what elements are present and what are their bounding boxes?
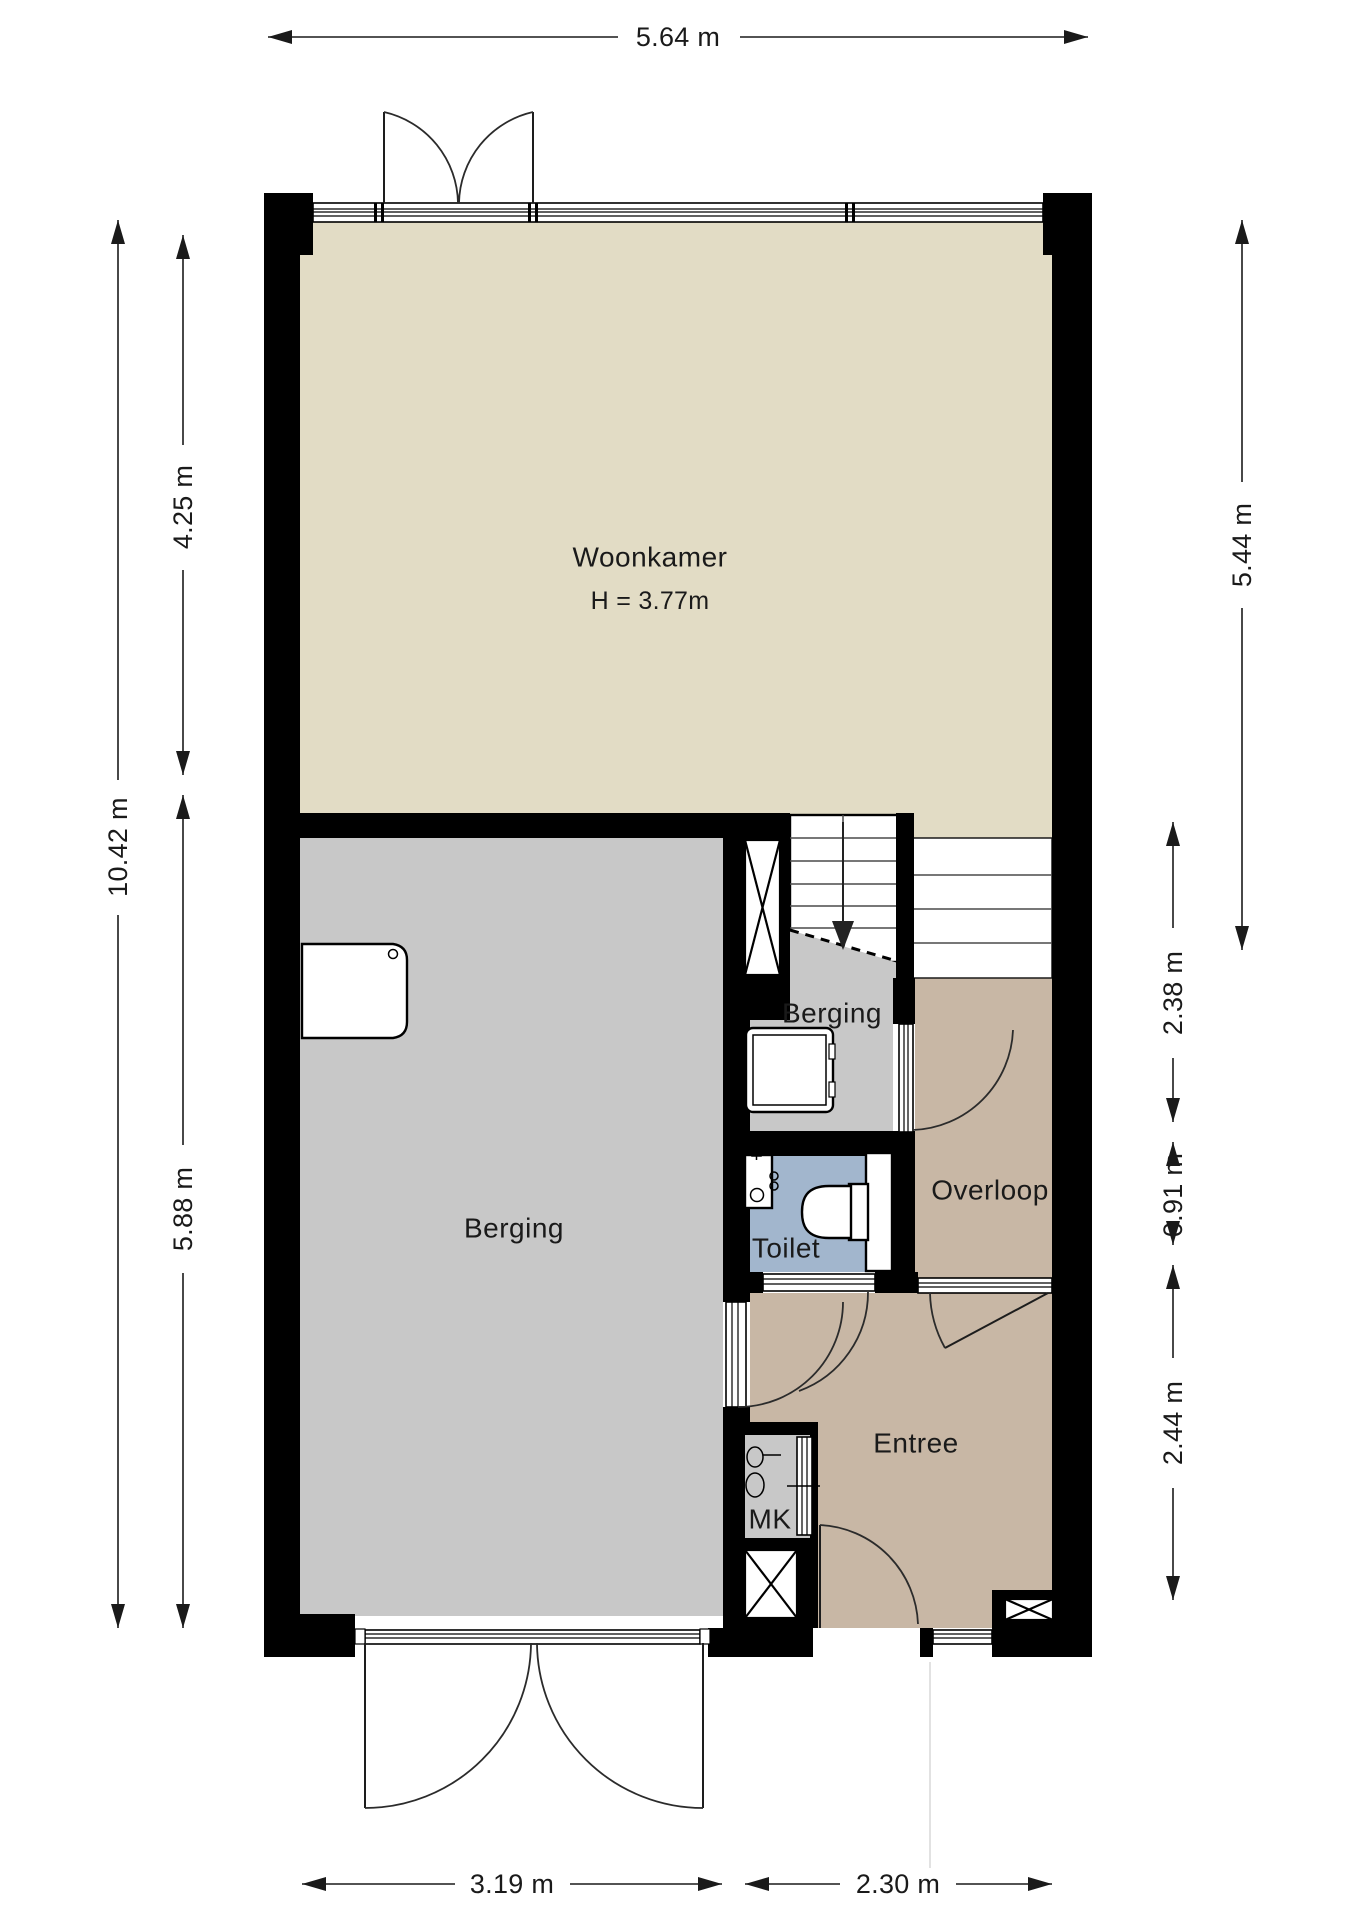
wall-corner-bottom-left: [264, 1614, 355, 1657]
wall-left: [264, 193, 300, 1657]
dimension-label-right-lower: 2.44 m: [1158, 1381, 1188, 1465]
window-divider: [535, 203, 538, 222]
wc-bowl: [802, 1186, 851, 1238]
door-jamb: [355, 1629, 365, 1644]
room-label-overloop: Overloop: [931, 1175, 1049, 1206]
washer-hinge-icon: [829, 1044, 835, 1059]
wall-woonkamer-berging: [264, 813, 790, 838]
room-note-woonkamer-height: H = 3.77m: [591, 587, 710, 615]
dimension-label-left-lower: 5.88 m: [168, 1167, 198, 1251]
dimension-label-bottom-left: 3.19 m: [470, 1869, 554, 1899]
wall-stair-divider: [896, 813, 914, 978]
wall-corner-top-left: [264, 193, 313, 255]
room-label-berging-small: Berging: [782, 998, 882, 1029]
stairs-lower-flight: [913, 838, 1052, 978]
wall-right: [1052, 193, 1092, 1657]
washer-hinge-icon: [829, 1082, 835, 1097]
staircase: [790, 815, 1052, 978]
door-bottom-band: [365, 1630, 700, 1644]
room-label-entree: Entree: [873, 1428, 959, 1459]
window-divider: [528, 203, 531, 222]
dimension-label-top: 5.64 m: [636, 22, 720, 52]
door-toilet-band: [763, 1274, 875, 1291]
wall-bottom-segment: [708, 1628, 813, 1657]
room-label-toilet: Toilet: [752, 1233, 820, 1264]
toilet-sink: [745, 1155, 772, 1208]
wall-overloop-west: [893, 978, 915, 1024]
dimension-label-bottom-right: 2.30 m: [856, 1869, 940, 1899]
window-bottom-right: [933, 1630, 992, 1644]
dimension-label-left-upper: 4.25 m: [168, 465, 198, 549]
dimension-label-right-middle-upper: 2.38 m: [1158, 951, 1188, 1035]
door-jamb: [700, 1629, 710, 1644]
toilet-duct-panel: [866, 1153, 892, 1271]
wall-overloop-entree-stub: [893, 1272, 918, 1293]
window-divider: [374, 203, 377, 222]
wall-toilet-south-left: [735, 1272, 763, 1293]
floor-plan-canvas: Woonkamer H = 3.77m Berging Berging Toil…: [0, 0, 1358, 1920]
wall-bottom-sliver: [920, 1628, 933, 1657]
window-divider: [845, 203, 848, 222]
door-overloop-entree-band: [918, 1278, 1052, 1293]
room-label-mk: MK: [749, 1504, 792, 1535]
dimension-label-right-upper: 5.44 m: [1227, 503, 1257, 587]
dimension-label-right-middle-lower: 0.91 m: [1158, 1153, 1188, 1237]
wall-toilet-east: [890, 1131, 915, 1293]
door-berging-leaf: [726, 1302, 746, 1407]
dimension-label-left-total: 10.42 m: [103, 797, 133, 897]
room-label-woonkamer: Woonkamer: [573, 542, 728, 573]
room-overloop-floor: [915, 978, 1052, 1293]
window-divider: [381, 203, 384, 222]
door-overloop-berging-leaf: [899, 1024, 913, 1132]
window-divider: [852, 203, 855, 222]
washing-machine: [746, 1028, 833, 1112]
room-woonkamer-floor: [300, 222, 1052, 838]
room-label-berging-large: Berging: [464, 1213, 564, 1244]
